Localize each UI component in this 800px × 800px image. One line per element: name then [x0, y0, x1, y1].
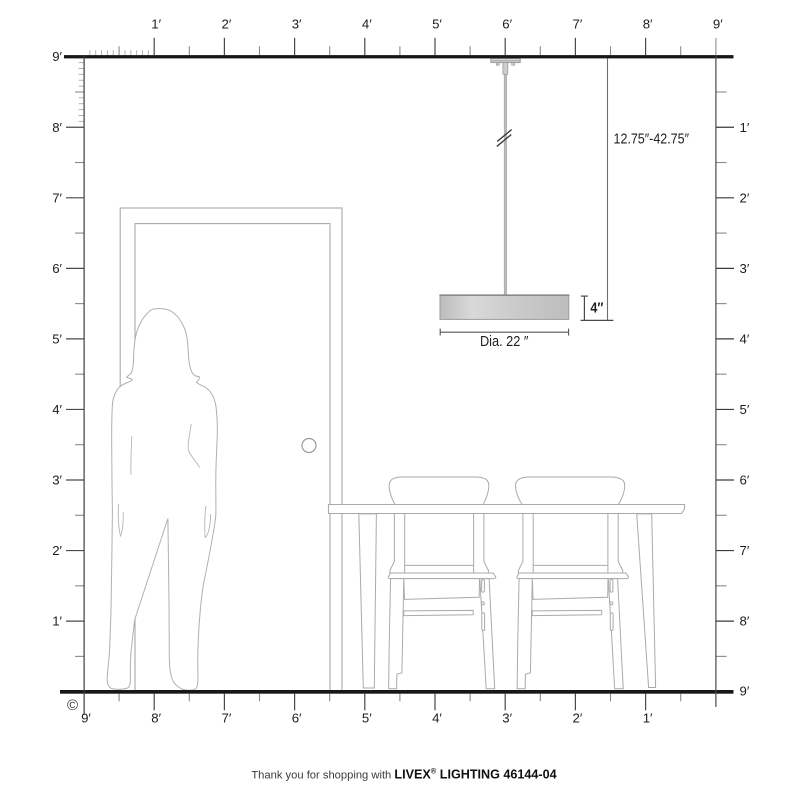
svg-text:5′: 5′ [740, 402, 750, 417]
svg-text:6′: 6′ [52, 261, 62, 276]
svg-text:5′: 5′ [52, 331, 62, 346]
svg-text:12.75″-42.75″: 12.75″-42.75″ [614, 132, 690, 148]
svg-text:9′: 9′ [740, 684, 750, 699]
svg-text:9′: 9′ [713, 17, 723, 32]
svg-text:7′: 7′ [221, 711, 231, 726]
svg-text:3′: 3′ [292, 17, 302, 32]
svg-text:1′: 1′ [151, 17, 161, 32]
svg-text:Thank you for shopping with LI: Thank you for shopping with LIVEX® LIGHT… [251, 767, 556, 782]
svg-text:7′: 7′ [52, 190, 62, 205]
svg-text:9′: 9′ [52, 49, 62, 64]
svg-text:4′: 4′ [432, 711, 442, 726]
svg-text:©: © [67, 697, 78, 714]
svg-text:8′: 8′ [151, 711, 161, 726]
svg-text:8′: 8′ [52, 120, 62, 135]
svg-text:1′: 1′ [740, 120, 750, 135]
svg-text:5′: 5′ [362, 711, 372, 726]
svg-text:1′: 1′ [52, 614, 62, 629]
svg-text:8′: 8′ [740, 614, 750, 629]
svg-text:Dia. 22 ″: Dia. 22 ″ [480, 333, 529, 350]
svg-text:8′: 8′ [643, 17, 653, 32]
svg-text:5′: 5′ [432, 17, 442, 32]
svg-text:4′: 4′ [362, 17, 372, 32]
svg-text:6′: 6′ [502, 17, 512, 32]
svg-text:4′: 4′ [740, 331, 750, 346]
svg-text:3′: 3′ [502, 711, 512, 726]
svg-text:7′: 7′ [572, 17, 582, 32]
svg-text:2′: 2′ [572, 711, 582, 726]
svg-text:2′: 2′ [221, 17, 231, 32]
svg-text:2′: 2′ [740, 190, 750, 205]
svg-text:3′: 3′ [52, 473, 62, 488]
svg-text:2′: 2′ [52, 543, 62, 558]
svg-text:3′: 3′ [740, 261, 750, 276]
svg-text:6′: 6′ [292, 711, 302, 726]
svg-text:1′: 1′ [643, 711, 653, 726]
svg-text:7′: 7′ [740, 543, 750, 558]
svg-text:4″: 4″ [590, 300, 603, 316]
svg-text:6′: 6′ [740, 473, 750, 488]
svg-text:9′: 9′ [81, 711, 91, 726]
svg-text:4′: 4′ [52, 402, 62, 417]
